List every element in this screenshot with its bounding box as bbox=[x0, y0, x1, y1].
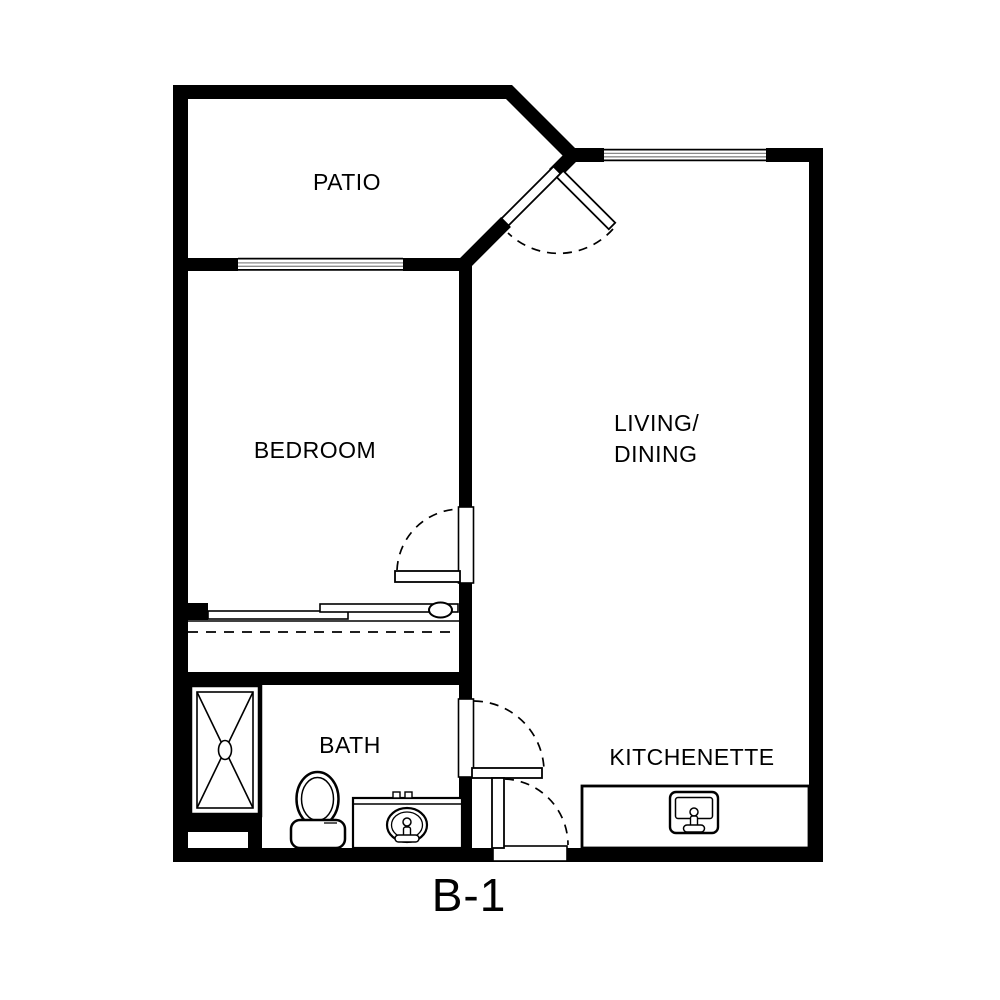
room-label-kitchenette: KITCHENETTE bbox=[609, 744, 774, 770]
bedroom-living-wall-upper bbox=[459, 258, 472, 507]
room-label-living-line2: DINING bbox=[614, 441, 698, 467]
kitchen-sink bbox=[670, 792, 718, 833]
bedroom-door-leaf bbox=[395, 571, 460, 582]
vanity-faucet-handle-right bbox=[405, 792, 412, 798]
room-label-bedroom: BEDROOM bbox=[254, 437, 376, 463]
room-label-bath: BATH bbox=[319, 732, 381, 758]
kitchenette-counter bbox=[582, 786, 809, 848]
bath-door-leaf bbox=[472, 768, 542, 778]
room-label-patio: PATIO bbox=[313, 169, 381, 195]
vanity-faucet-handle-left bbox=[393, 792, 400, 798]
shower bbox=[190, 685, 260, 815]
room-label-living-line1: LIVING/ bbox=[614, 410, 699, 436]
interior-floor bbox=[188, 99, 809, 848]
kitchen-faucet bbox=[690, 808, 698, 816]
vanity bbox=[353, 792, 462, 848]
entry-door-leaf bbox=[492, 778, 504, 848]
niche-side-wall bbox=[248, 832, 262, 848]
living-window bbox=[604, 147, 766, 162]
bath-door-frame bbox=[459, 699, 474, 777]
closet-door-handle bbox=[429, 603, 452, 618]
closet-left-stub-wall bbox=[188, 603, 208, 620]
toilet-tank bbox=[291, 820, 345, 848]
shower-drain bbox=[219, 741, 232, 760]
patio-window bbox=[238, 256, 403, 273]
floor-plan-page: PATIO BEDROOM LIVING/ DINING BATH KITCHE… bbox=[0, 0, 1000, 1000]
floor-plan-svg: PATIO BEDROOM LIVING/ DINING BATH KITCHE… bbox=[0, 0, 1000, 1000]
shower-bottom-wall bbox=[188, 817, 262, 832]
plan-title: B-1 bbox=[432, 869, 507, 921]
vanity-faucet bbox=[403, 818, 411, 826]
